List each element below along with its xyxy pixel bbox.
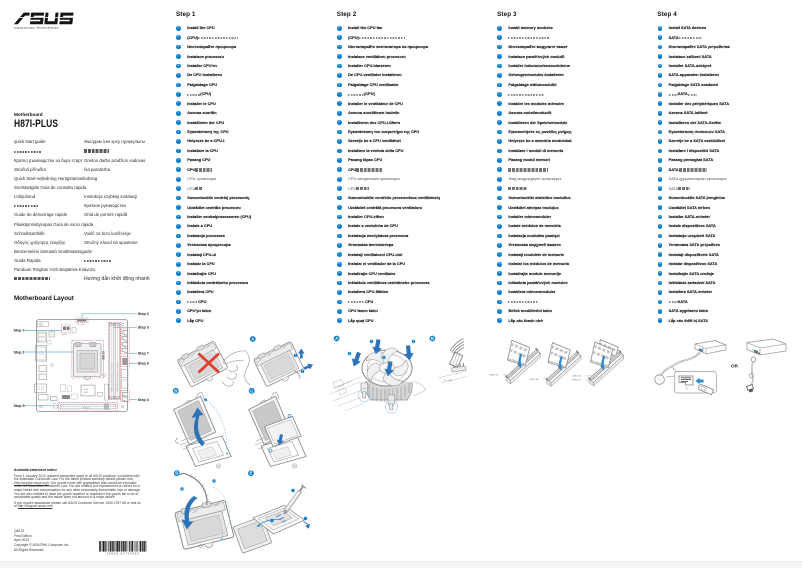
- svg-text:E: E: [250, 471, 253, 476]
- svg-text:Step 1: Step 1: [14, 350, 25, 354]
- svg-text:C: C: [250, 388, 253, 393]
- svg-text:Step 3: Step 3: [138, 326, 149, 330]
- svg-text:Step 7: Step 7: [14, 329, 25, 333]
- svg-text:OR: OR: [731, 364, 739, 369]
- svg-text:D: D: [175, 471, 178, 476]
- svg-text:Intel: Intel: [84, 388, 89, 391]
- svg-text:PCIEX16: PCIEX16: [82, 407, 89, 409]
- svg-text:DIMM_A1: DIMM_A1: [530, 378, 540, 381]
- svg-text:DIMM_A1: DIMM_A1: [572, 375, 582, 378]
- svg-text:B: B: [174, 388, 177, 393]
- svg-text:B: B: [431, 336, 434, 341]
- svg-text:DIMM_A1: DIMM_A1: [489, 374, 499, 377]
- svg-text:DIMM_B1 (64bit,240-pin module): DIMM_B1 (64bit,240-pin module): [116, 362, 119, 392]
- svg-text:15G60-04714000: 15G60-04714000: [107, 551, 140, 555]
- svg-text:DIMM_A1 (64bit,240-pin module): DIMM_A1 (64bit,240-pin module): [111, 362, 114, 392]
- svg-text:Step 4: Step 4: [138, 398, 150, 402]
- svg-text:A: A: [335, 336, 338, 341]
- svg-text:Inspiring Innovation · Persist: Inspiring Innovation · Persistent Perfec…: [14, 27, 59, 30]
- svg-text:Step 6: Step 6: [138, 362, 149, 366]
- svg-text:/ISUS: /ISUS: [102, 350, 106, 360]
- svg-text:Step 5: Step 5: [14, 404, 25, 408]
- svg-text:Step 2: Step 2: [138, 312, 149, 316]
- svg-text:USB12: USB12: [62, 334, 67, 336]
- svg-text:CPU_FAN: CPU_FAN: [443, 379, 453, 382]
- svg-text:Step 7: Step 7: [138, 352, 149, 356]
- svg-text:A: A: [251, 337, 254, 342]
- svg-text:DIMM_B1: DIMM_B1: [572, 380, 582, 382]
